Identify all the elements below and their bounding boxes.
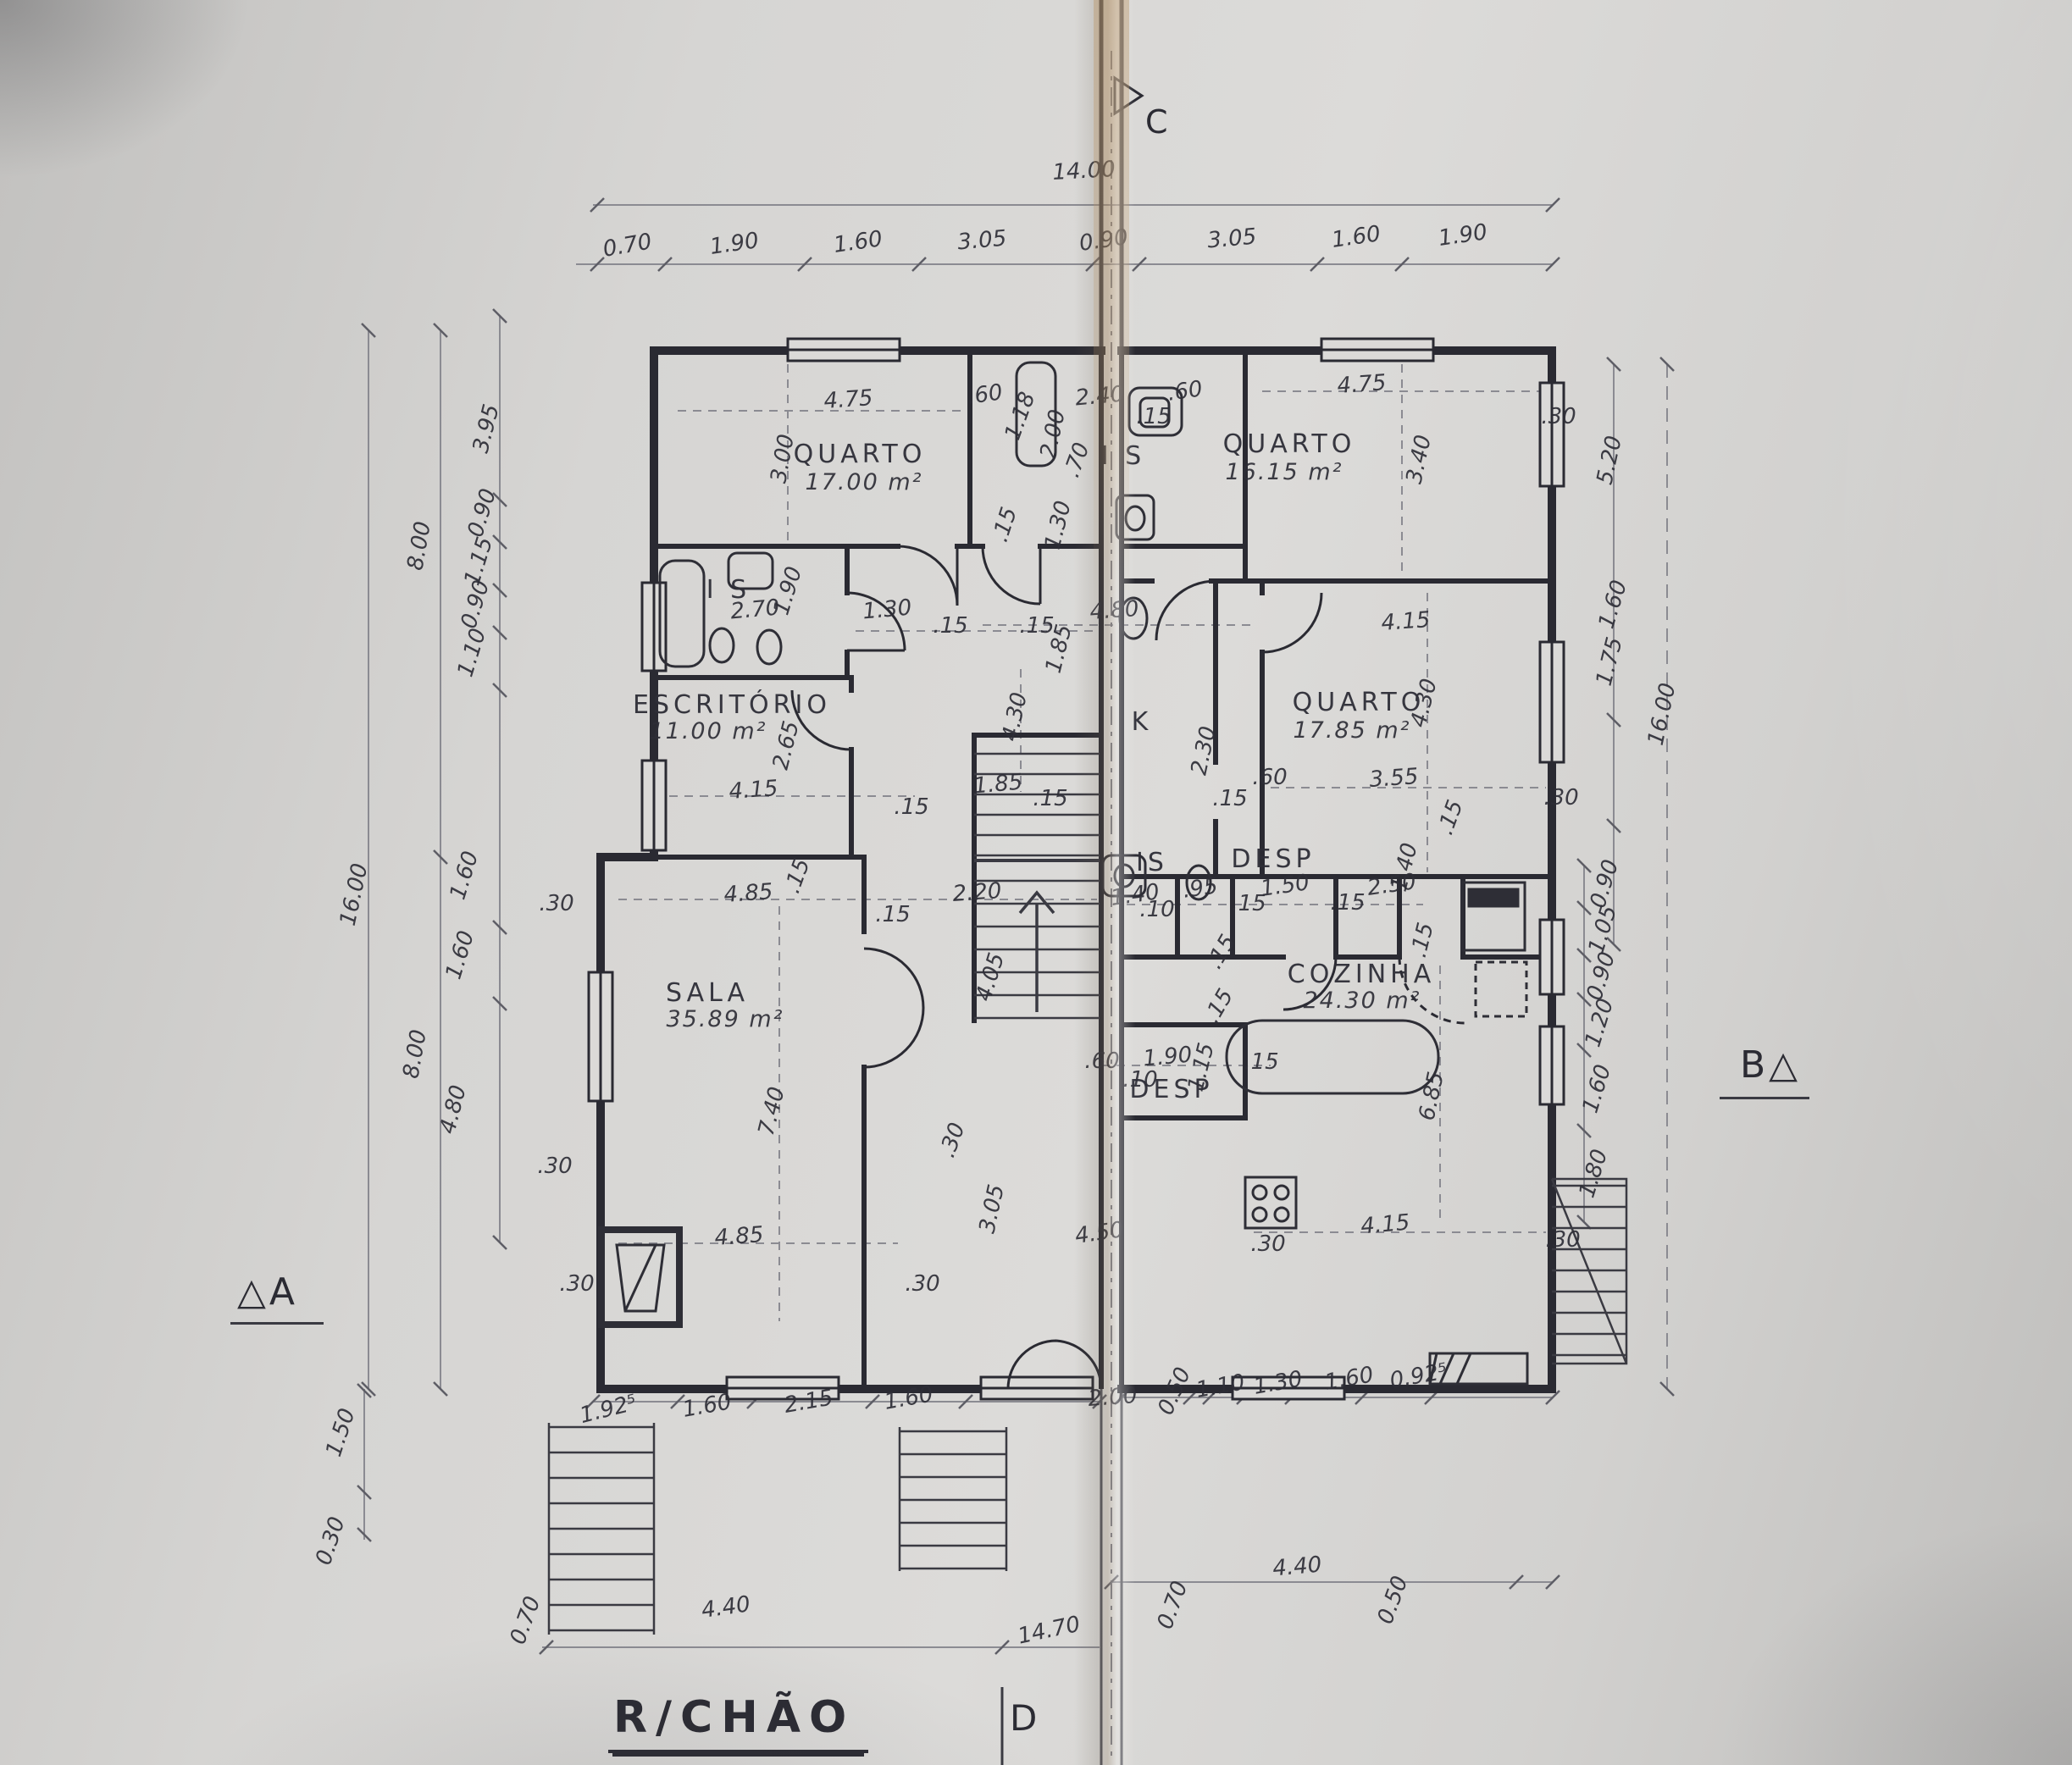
dimension-label: 4.80 <box>1089 596 1140 625</box>
room-label: QUARTO <box>794 440 927 469</box>
bidet-icon <box>757 630 781 664</box>
dimension-label: 4.85 <box>714 1222 765 1251</box>
dimension-label: .15 <box>933 613 967 639</box>
dimension-label: 0.50 <box>1372 1573 1413 1628</box>
dimension-label: 0.70 <box>601 229 654 263</box>
dimension-label: 1.60 <box>1594 578 1633 632</box>
dimension-label: .60 <box>1084 1048 1119 1074</box>
dimension-label: .15 <box>779 855 815 897</box>
room-area-label: 16.15 m² <box>1225 459 1343 485</box>
dimension-label: 4.15 <box>1360 1210 1410 1240</box>
dimension-label: .30 <box>934 1120 970 1161</box>
dimension-label: 2.00 <box>1088 1383 1138 1412</box>
dimension-label: 6.85 <box>1414 1070 1449 1123</box>
dimension-label: 1.60 <box>441 928 480 982</box>
dimension-label: 1.60 <box>832 226 884 258</box>
room-area-label: 17.00 m² <box>805 469 922 495</box>
fridge-icon <box>1476 962 1526 1016</box>
dimension-label: 1.20 <box>1581 996 1620 1050</box>
dimension-label: 1.90 <box>708 228 761 260</box>
dimension-label: 3.05 <box>974 1182 1009 1236</box>
section-marker-d: D <box>1010 1697 1040 1739</box>
dimension-label: 3.40 <box>1401 433 1436 486</box>
room-label: I S <box>1101 441 1145 471</box>
dimension-label: .15 <box>1406 920 1439 960</box>
dimension-label: 0.90 <box>457 578 496 632</box>
dimension-label: .60 <box>1166 376 1204 406</box>
door-icon <box>864 949 923 1067</box>
dimension-label: 3.05 <box>1206 224 1257 254</box>
room-label: QUARTO <box>1293 688 1426 717</box>
dimension-label: 2.20 <box>952 878 1003 907</box>
dimension-label: 16.00 <box>1643 681 1681 748</box>
room-label: DESP <box>1231 844 1315 874</box>
dimension-label: 4.15 <box>729 776 779 805</box>
dimension-label: .15 <box>988 504 1022 545</box>
floor-title: R/CHÃO <box>608 1692 868 1753</box>
dimension-label: 0.90 <box>1582 949 1621 1004</box>
dimension-label: 0.90 <box>1586 857 1625 911</box>
room-area-label: 24.30 m² <box>1303 988 1421 1014</box>
dimension-label: 4.50 <box>1073 1217 1126 1249</box>
toilet-icon <box>710 628 734 662</box>
dimension-label: 1.80 <box>1575 1147 1614 1201</box>
dimension-label: .15 <box>1136 404 1171 429</box>
dimension-label: .10 <box>1139 897 1174 922</box>
dimension-label: 1.85 <box>972 770 1023 800</box>
dimension-label: .70 <box>1059 440 1094 481</box>
dimension-label: 8.00 <box>402 520 436 573</box>
dimension-label: 2.30 <box>1186 724 1221 777</box>
dimension-label: 4.85 <box>723 879 774 908</box>
dimension-label: 5.20 <box>1592 434 1626 487</box>
dimension-label: 0.70 <box>1152 1578 1193 1633</box>
dimension-label: .15 <box>1199 985 1239 1028</box>
dimension-label: .95 <box>1181 873 1219 903</box>
dimension-label: 1.40 <box>1387 840 1423 894</box>
exterior-steps <box>549 1423 654 1635</box>
dimension-label: 14.00 <box>1052 157 1116 185</box>
dimension-label: 7.40 <box>754 1084 790 1137</box>
dimension-label: .15 <box>1231 891 1266 916</box>
dimension-label: 0.70 <box>505 1593 546 1648</box>
dimension-label: 1.18 <box>1000 389 1040 444</box>
dimension-label: 1.10 <box>453 626 492 680</box>
room-label: IS <box>1136 848 1168 877</box>
dimension-label: .30 <box>1543 785 1578 811</box>
room-area-label: 35.89 m² <box>666 1006 784 1032</box>
dimension-label: 1.30 <box>861 595 912 625</box>
dimension-label: 2.65 <box>768 718 805 772</box>
dimension-label: 1.60 <box>1330 221 1382 253</box>
door-icon <box>1156 581 1216 640</box>
dimension-label: 3.55 <box>1369 764 1420 793</box>
dimension-label: 4.75 <box>823 385 874 414</box>
room-label: COZINHA <box>1288 960 1435 989</box>
room-label: QUARTO <box>1223 429 1356 459</box>
dimension-label: 0.90 <box>463 486 502 540</box>
section-marker-c: C <box>1145 103 1172 141</box>
dimension-label: 3.05 <box>956 226 1007 256</box>
dimension-label: 1.60 <box>681 1389 734 1423</box>
room-label: K <box>1132 707 1153 737</box>
dimension-label: 4.40 <box>700 1591 752 1624</box>
entry-steps <box>900 1427 1006 1571</box>
dimension-label: 3.00 <box>766 433 800 485</box>
section-marker-a: △A <box>230 1270 324 1325</box>
dimension-label: 4.40 <box>1271 1552 1322 1582</box>
dimension-label: .15 <box>1202 931 1242 974</box>
dimension-label: 4.30 <box>1406 676 1443 729</box>
dimension-label: .30 <box>905 1271 939 1297</box>
dimension-label: 4.15 <box>1381 607 1432 636</box>
dimension-label: .30 <box>1541 404 1576 429</box>
floorplan-drawing: 14.000.701.901.603.050.903.051.601.9016.… <box>0 0 2072 1765</box>
dimension-label: .60 <box>966 379 1004 409</box>
dimension-label: 1.60 <box>446 849 485 903</box>
dimension-label: .30 <box>539 891 573 916</box>
dimension-label: .10 <box>1122 1067 1157 1093</box>
dimension-label: .30 <box>537 1154 572 1179</box>
dimension-label: .15 <box>1330 890 1365 916</box>
room-area-label: 11.00 m² <box>649 718 767 744</box>
dimension-label: .15 <box>1033 786 1067 811</box>
dimension-label: 1.92⁵ <box>577 1390 640 1429</box>
dimension-label: 0.30 <box>311 1513 350 1568</box>
room-label: SALA <box>666 978 749 1008</box>
dimension-label: 1.75 <box>1592 634 1628 688</box>
dimension-label: .15 <box>875 902 910 927</box>
side-steps <box>1552 1179 1626 1364</box>
door-icon <box>1262 593 1321 652</box>
dimension-label: 1.90 <box>1437 219 1489 252</box>
dimension-label: .30 <box>1545 1227 1580 1253</box>
dimension-label: 2.40 <box>1074 382 1125 412</box>
dimension-label: 2.00 <box>1035 407 1070 461</box>
dimension-label: 1.05 <box>1584 903 1623 957</box>
dimension-label: 14.70 <box>1016 1612 1083 1650</box>
dimension-label: .60 <box>1252 765 1287 790</box>
dimension-label: 8.00 <box>398 1028 432 1081</box>
section-marker-b: B△ <box>1720 1043 1809 1099</box>
dimension-label: 4.75 <box>1337 370 1388 399</box>
dimension-label: .30 <box>559 1271 594 1297</box>
dimension-label: .15 <box>1432 797 1468 838</box>
dimension-label: 1.50 <box>321 1405 360 1459</box>
dimension-label: .30 <box>1250 1231 1285 1257</box>
floorplan-photo: 14.000.701.901.603.050.903.051.601.9016.… <box>0 0 2072 1765</box>
room-area-label: 17.85 m² <box>1293 717 1410 744</box>
stove-icon <box>1245 1177 1296 1228</box>
dimension-label: 1.90 <box>769 564 808 618</box>
room-label: ESCRITÓRIO <box>633 689 831 720</box>
dimension-label: .15 <box>1244 1049 1278 1075</box>
door-icon <box>983 546 1040 604</box>
dimension-label: .15 <box>1212 786 1247 811</box>
dimension-label: .15 <box>894 794 928 820</box>
dimension-label: 16.00 <box>335 861 374 928</box>
